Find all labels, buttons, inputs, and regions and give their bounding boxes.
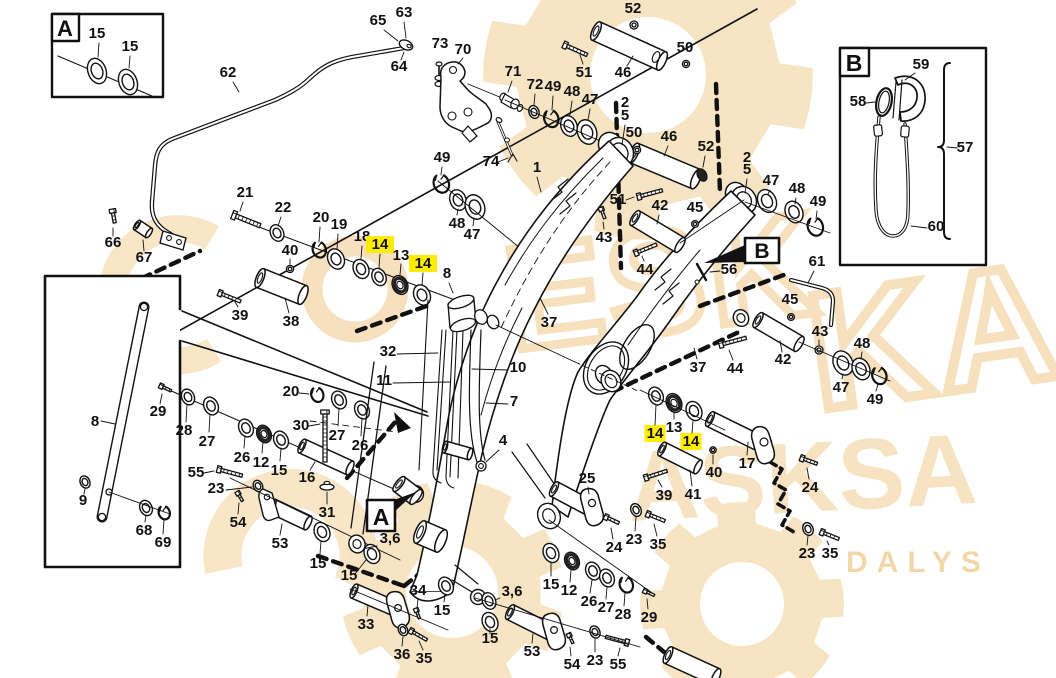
svg-text:57: 57: [957, 139, 974, 156]
svg-text:54: 54: [564, 656, 581, 673]
svg-text:53: 53: [524, 643, 541, 660]
svg-text:4: 4: [499, 432, 508, 449]
svg-text:45: 45: [782, 291, 799, 308]
svg-text:72: 72: [527, 76, 544, 93]
svg-text:53: 53: [272, 535, 289, 552]
svg-text:B: B: [754, 240, 769, 263]
svg-text:39: 39: [656, 487, 673, 504]
svg-text:71: 71: [505, 63, 522, 80]
svg-text:12: 12: [561, 582, 578, 599]
svg-text:15: 15: [271, 462, 288, 479]
svg-text:27: 27: [329, 427, 346, 444]
svg-text:15: 15: [310, 555, 327, 572]
svg-text:8: 8: [443, 265, 451, 282]
svg-text:15: 15: [434, 602, 451, 619]
svg-text:51: 51: [610, 191, 627, 208]
svg-text:73: 73: [432, 35, 449, 52]
svg-text:55: 55: [610, 656, 627, 673]
svg-text:74: 74: [483, 153, 500, 170]
svg-text:25: 25: [579, 470, 596, 487]
svg-text:10: 10: [510, 359, 527, 376]
svg-text:3,6: 3,6: [380, 530, 401, 547]
svg-text:38: 38: [283, 313, 300, 330]
svg-text:37: 37: [690, 359, 707, 376]
svg-text:46: 46: [661, 128, 678, 145]
svg-text:42: 42: [652, 197, 669, 214]
svg-text:15: 15: [122, 38, 139, 55]
svg-text:21: 21: [237, 184, 254, 201]
svg-text:14: 14: [415, 255, 432, 272]
svg-text:A: A: [57, 16, 73, 41]
svg-text:23: 23: [587, 652, 604, 669]
svg-text:43: 43: [812, 323, 829, 340]
svg-text:14: 14: [372, 236, 389, 253]
svg-text:44: 44: [637, 261, 654, 278]
svg-text:47: 47: [763, 172, 780, 189]
svg-text:65: 65: [370, 12, 387, 29]
svg-text:63: 63: [396, 4, 413, 21]
svg-text:69: 69: [155, 534, 172, 551]
svg-text:45: 45: [687, 199, 704, 216]
svg-text:29: 29: [150, 403, 167, 420]
svg-text:5: 5: [743, 161, 751, 178]
svg-text:12: 12: [253, 454, 270, 471]
svg-text:50: 50: [677, 39, 694, 56]
svg-text:19: 19: [331, 216, 348, 233]
svg-text:22: 22: [275, 199, 292, 216]
svg-text:27: 27: [199, 433, 216, 450]
svg-text:3,6: 3,6: [502, 583, 523, 600]
svg-text:44: 44: [727, 360, 744, 377]
svg-text:36: 36: [394, 646, 411, 663]
svg-text:54: 54: [230, 514, 247, 531]
svg-text:35: 35: [416, 650, 433, 667]
svg-text:26: 26: [581, 593, 598, 610]
svg-text:8: 8: [91, 413, 99, 430]
svg-text:40: 40: [706, 464, 723, 481]
svg-text:5: 5: [621, 107, 629, 124]
svg-text:35: 35: [650, 536, 667, 553]
svg-text:61: 61: [809, 253, 826, 270]
svg-text:15: 15: [89, 25, 106, 42]
svg-text:B: B: [846, 50, 863, 76]
svg-text:32: 32: [380, 343, 397, 360]
svg-text:37: 37: [541, 314, 558, 331]
svg-text:58: 58: [850, 93, 867, 110]
svg-text:7: 7: [510, 393, 518, 410]
svg-text:48: 48: [854, 335, 871, 352]
svg-text:28: 28: [615, 606, 632, 623]
svg-text:17: 17: [739, 455, 756, 472]
svg-text:26: 26: [352, 437, 369, 454]
svg-text:68: 68: [136, 522, 153, 539]
svg-text:13: 13: [666, 419, 683, 436]
svg-text:14: 14: [647, 425, 664, 442]
svg-text:23: 23: [799, 545, 816, 562]
svg-text:49: 49: [867, 391, 884, 408]
svg-text:26: 26: [234, 449, 251, 466]
svg-text:52: 52: [625, 0, 642, 17]
svg-text:20: 20: [313, 209, 330, 226]
svg-text:49: 49: [810, 193, 827, 210]
svg-text:23: 23: [626, 531, 643, 548]
svg-text:42: 42: [775, 351, 792, 368]
svg-text:35: 35: [822, 545, 839, 562]
svg-text:15: 15: [543, 576, 560, 593]
svg-text:60: 60: [928, 218, 945, 235]
svg-text:46: 46: [615, 64, 632, 81]
svg-text:66: 66: [105, 234, 122, 251]
svg-text:30: 30: [293, 417, 310, 434]
svg-text:70: 70: [455, 41, 472, 58]
svg-text:52: 52: [698, 138, 715, 155]
svg-text:31: 31: [319, 504, 336, 521]
svg-text:59: 59: [913, 56, 930, 73]
svg-text:28: 28: [176, 422, 193, 439]
svg-text:15: 15: [341, 567, 358, 584]
svg-text:34: 34: [410, 582, 427, 599]
svg-text:1: 1: [533, 159, 541, 176]
svg-text:47: 47: [833, 379, 850, 396]
svg-text:47: 47: [582, 91, 599, 108]
svg-text:43: 43: [596, 229, 613, 246]
svg-text:9: 9: [79, 492, 87, 509]
svg-text:33: 33: [358, 616, 375, 633]
svg-text:23: 23: [208, 480, 225, 497]
svg-text:49: 49: [545, 78, 562, 95]
svg-text:48: 48: [789, 180, 806, 197]
svg-text:29: 29: [641, 609, 658, 626]
svg-text:39: 39: [232, 307, 249, 324]
svg-text:24: 24: [606, 539, 623, 556]
svg-text:67: 67: [136, 249, 153, 266]
svg-text:27: 27: [598, 599, 615, 616]
svg-text:A: A: [373, 504, 390, 530]
svg-text:62: 62: [220, 64, 237, 81]
svg-text:51: 51: [576, 64, 593, 81]
svg-text:50: 50: [626, 124, 643, 141]
svg-text:49: 49: [434, 149, 451, 166]
svg-text:40: 40: [282, 242, 299, 259]
svg-text:64: 64: [391, 58, 408, 75]
svg-text:56: 56: [721, 261, 738, 278]
svg-text:16: 16: [299, 469, 316, 486]
svg-text:55: 55: [188, 464, 205, 481]
svg-text:14: 14: [683, 433, 700, 450]
svg-text:DALYS: DALYS: [846, 546, 990, 579]
svg-text:47: 47: [464, 226, 481, 243]
svg-text:48: 48: [564, 83, 581, 100]
svg-text:41: 41: [685, 486, 702, 503]
svg-text:20: 20: [283, 383, 300, 400]
svg-text:24: 24: [802, 479, 819, 496]
svg-text:13: 13: [393, 247, 410, 264]
